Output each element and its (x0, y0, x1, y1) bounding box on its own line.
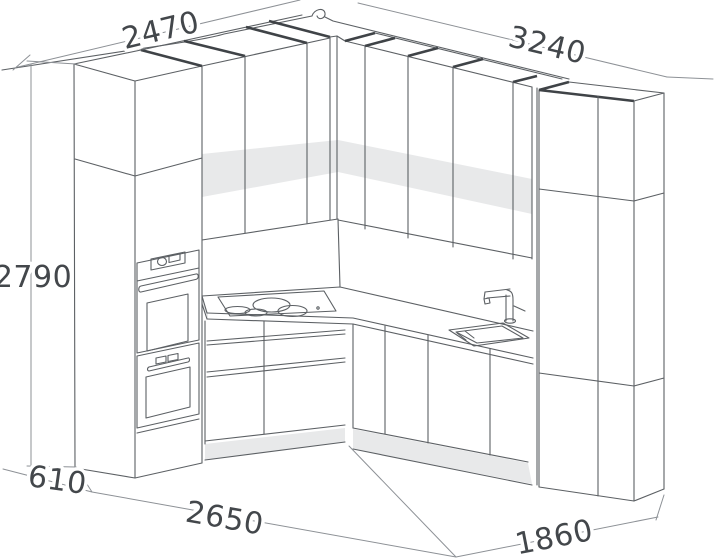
shaded-areas (202, 140, 532, 484)
dim-label-right-run: 1860 (512, 513, 596, 560)
oven-upper-knob (158, 258, 167, 266)
wall-cabinets-left-run (141, 15, 338, 240)
oven-upper-handle (139, 274, 199, 292)
wall-cabinets-right-run (337, 33, 562, 485)
cooktop-control-dot (317, 307, 319, 309)
dim-label-right-wall-width: 3240 (505, 20, 589, 72)
toe-kick-right-run (353, 429, 532, 484)
kitchen-isometric-drawing: 2470 3240 2790 610 2650 1860 (0, 0, 714, 560)
oven-upper (137, 250, 199, 353)
kitchen-dimension-diagram: 2470 3240 2790 610 2650 1860 (0, 0, 714, 560)
wall-cabinet-band-right (338, 140, 532, 214)
faucet-lever (514, 306, 525, 311)
tall-cabinet-column-right (539, 82, 664, 501)
faucet (484, 289, 525, 323)
cooktop-zone-left (225, 307, 250, 314)
dim-line-left-run (92, 492, 456, 557)
oven-lower-window (146, 367, 190, 418)
wall-cut-outline (2, 9, 569, 79)
oven-lower (137, 343, 199, 428)
wall-cabinet-band-left (202, 140, 338, 197)
faucet-spout (484, 292, 490, 304)
cooktop (218, 291, 336, 317)
corner-post (330, 36, 337, 220)
oven-lower-display (156, 356, 166, 364)
dim-label-left-wall-width: 2470 (119, 5, 203, 57)
oven-upper-window (147, 294, 188, 351)
dim-label-left-run: 2650 (183, 495, 266, 543)
dim-label-height: 2790 (0, 260, 72, 295)
dim-label-depth: 610 (26, 459, 89, 502)
cooktop-zone-large (253, 298, 290, 312)
